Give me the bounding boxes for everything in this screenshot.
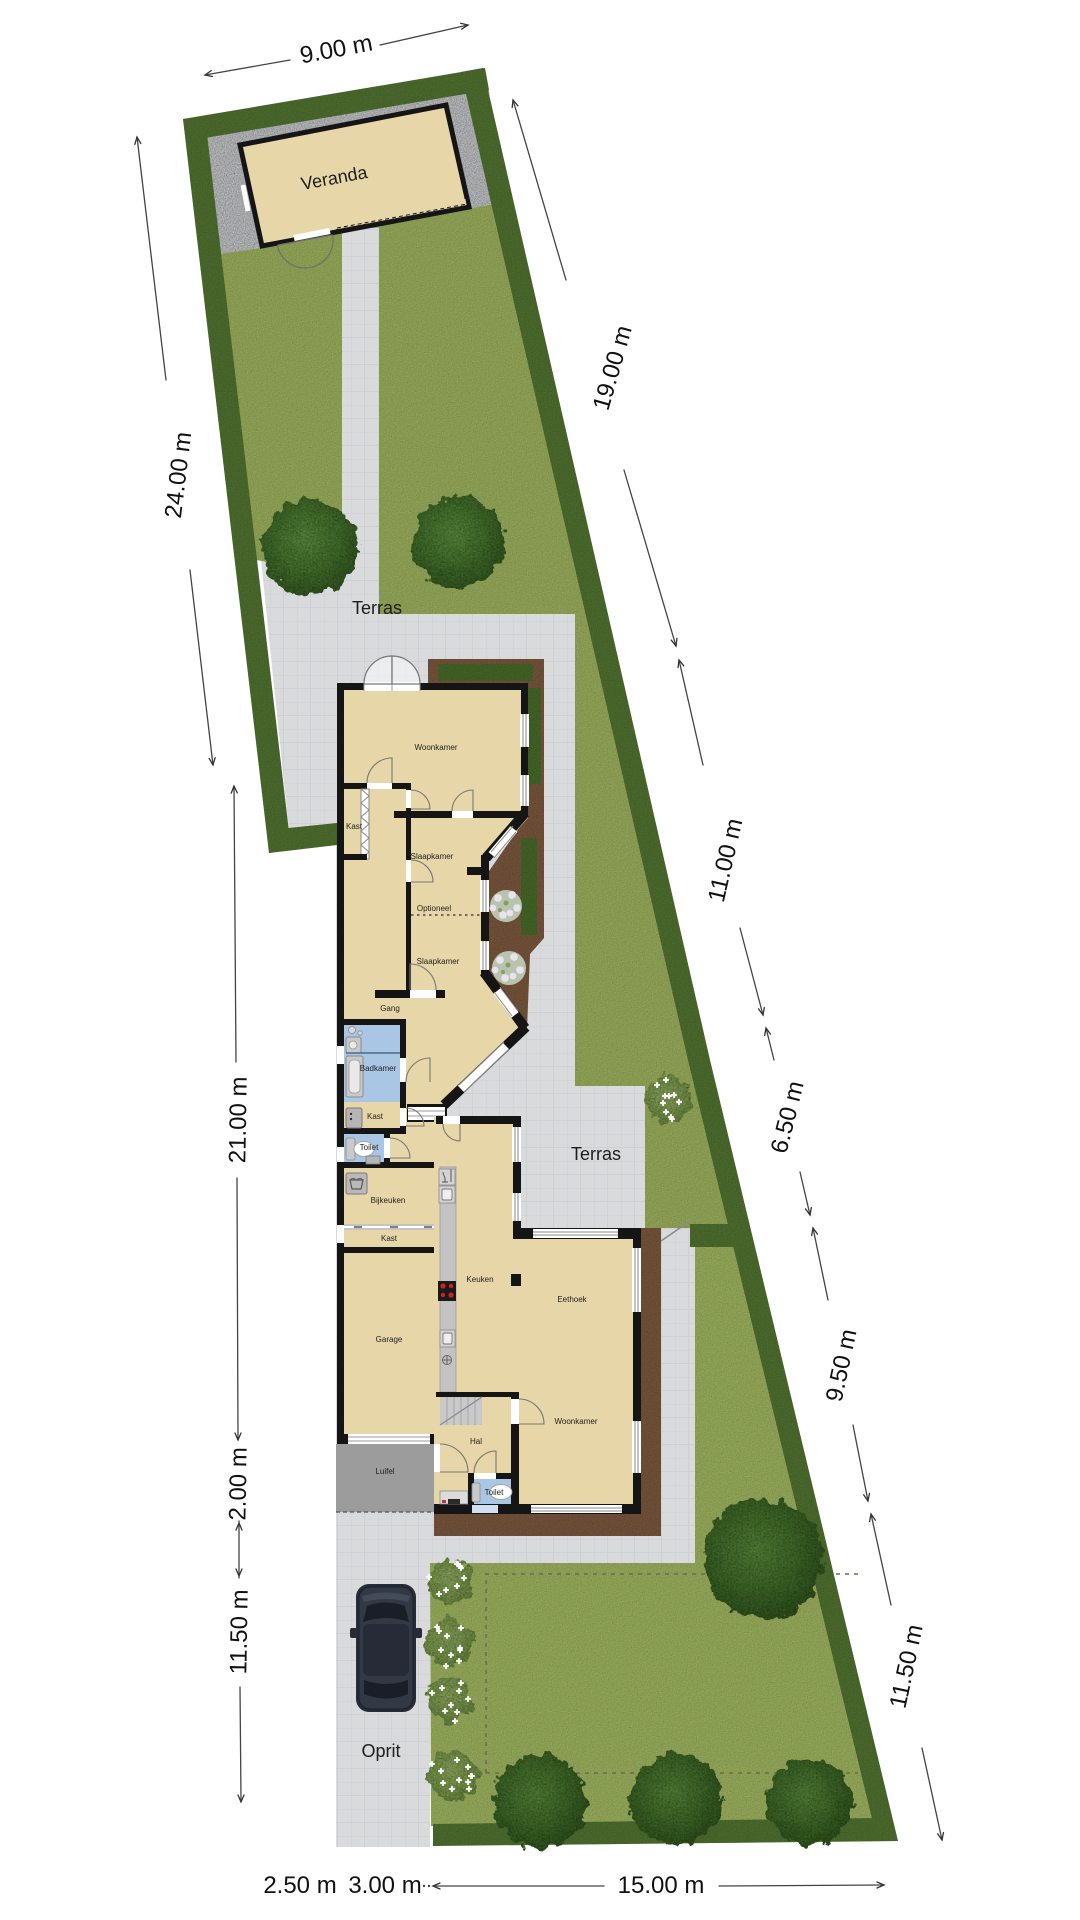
svg-text:15.00 m: 15.00 m — [618, 1872, 705, 1899]
svg-text:Oprit: Oprit — [361, 1741, 400, 1761]
svg-text:Gang: Gang — [380, 1004, 400, 1013]
svg-text:11.50 m: 11.50 m — [225, 1589, 253, 1674]
svg-text:2.50 m: 2.50 m — [263, 1872, 336, 1899]
svg-text:Woonkamer: Woonkamer — [555, 1417, 598, 1426]
svg-text:Optioneel: Optioneel — [417, 904, 451, 913]
svg-text:Kast: Kast — [381, 1234, 398, 1243]
svg-text:Luifel: Luifel — [375, 1467, 394, 1476]
svg-text:Woonkamer: Woonkamer — [415, 743, 458, 752]
svg-text:Kast: Kast — [346, 822, 363, 831]
svg-text:Hal: Hal — [470, 1437, 482, 1446]
svg-text:2.00 m: 2.00 m — [224, 1447, 252, 1521]
svg-text:Keuken: Keuken — [466, 1275, 493, 1284]
svg-text:Slaapkamer: Slaapkamer — [411, 852, 454, 861]
svg-text:3.00 m: 3.00 m — [348, 1872, 421, 1899]
svg-text:Bijkeuken: Bijkeuken — [371, 1196, 406, 1205]
svg-text:Garage: Garage — [376, 1335, 403, 1344]
svg-text:Eethoek: Eethoek — [557, 1295, 587, 1304]
svg-text:Slaapkamer: Slaapkamer — [417, 957, 460, 966]
svg-text:Toilet: Toilet — [485, 1488, 504, 1497]
svg-text:21.00 m: 21.00 m — [224, 1076, 253, 1163]
svg-text:Terras: Terras — [352, 598, 402, 618]
svg-text:Kast: Kast — [367, 1112, 384, 1121]
svg-text:Badkamer: Badkamer — [360, 1064, 397, 1073]
svg-text:Toilet: Toilet — [360, 1143, 379, 1152]
svg-text:Terras: Terras — [571, 1144, 621, 1164]
